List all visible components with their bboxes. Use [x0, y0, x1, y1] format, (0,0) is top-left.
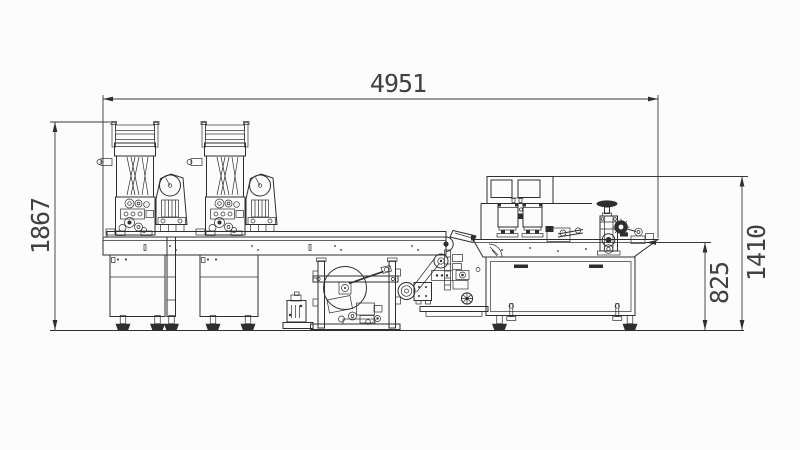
support-cabinet-1	[110, 255, 165, 317]
machine-feet-left	[116, 316, 256, 331]
dim-overall-length-label: 4951	[370, 69, 426, 98]
cartoner-machine	[473, 177, 658, 331]
feeder-unit-1	[97, 122, 187, 236]
dim-machine-height: 1410	[553, 177, 771, 331]
door-handle-2	[589, 265, 603, 269]
pump-unit	[283, 292, 313, 329]
technical-drawing-canvas: 4951 1867 1410 825	[0, 0, 800, 450]
machine-deck	[473, 240, 658, 258]
conveyor	[103, 231, 476, 256]
dim-overall-height: 1867	[26, 122, 110, 330]
film-reel-stand	[311, 258, 401, 330]
drive-motor-assembly	[398, 250, 488, 316]
base-cabinet	[486, 257, 635, 316]
feeder-unit-2	[187, 122, 277, 236]
control-panel	[487, 177, 553, 204]
twin-hoppers	[497, 204, 543, 238]
machine-feet-right	[492, 304, 638, 331]
display-window-1	[491, 180, 512, 198]
support-column	[167, 237, 176, 317]
dim-table-height-label: 825	[705, 262, 734, 304]
dim-overall-height-label: 1867	[26, 198, 55, 254]
door-handle-1	[514, 265, 528, 269]
dim-machine-height-label: 1410	[742, 225, 771, 281]
support-cabinet-2	[200, 255, 258, 317]
display-window-2	[518, 180, 540, 198]
dim-table-height: 825	[646, 240, 734, 330]
